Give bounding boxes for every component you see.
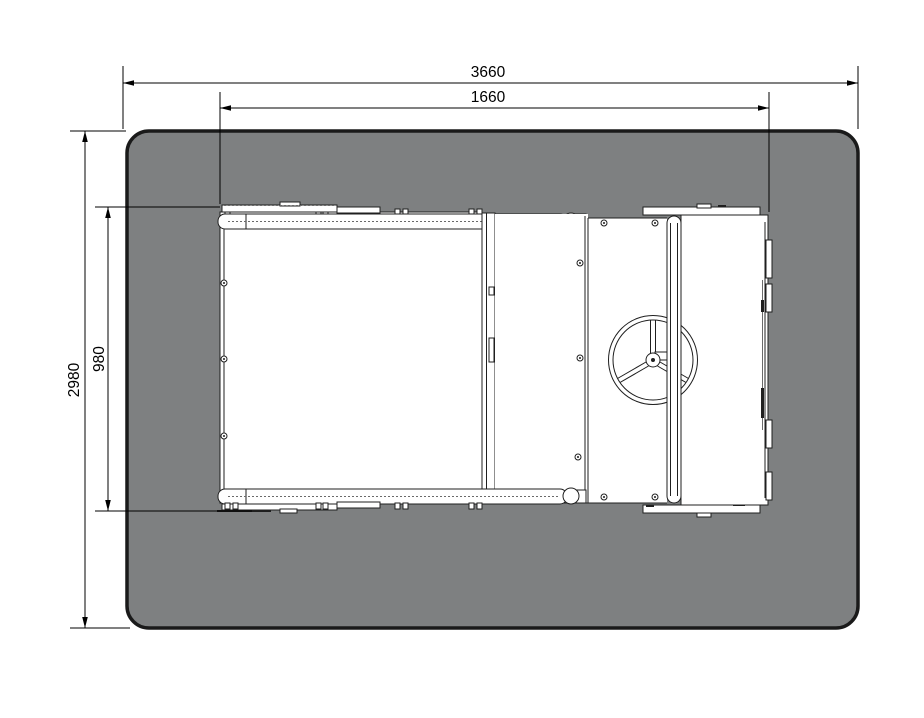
center-divider-column (482, 213, 495, 503)
vertical-handle-bar (667, 216, 681, 503)
dimension-label-overall-depth: 2980 (66, 362, 83, 397)
left-platform-panel (220, 212, 482, 503)
right-panel (681, 215, 772, 505)
dimension-label-equipment-depth: 980 (91, 346, 108, 372)
dimension-label-overall-width: 3660 (471, 64, 506, 81)
bottom-rail-end-knob (563, 488, 579, 504)
technical-drawing-canvas: 3660 1660 2980 980 (0, 0, 924, 718)
dimension-label-equipment-width: 1660 (471, 89, 506, 106)
equipment-top-view (217, 202, 772, 517)
